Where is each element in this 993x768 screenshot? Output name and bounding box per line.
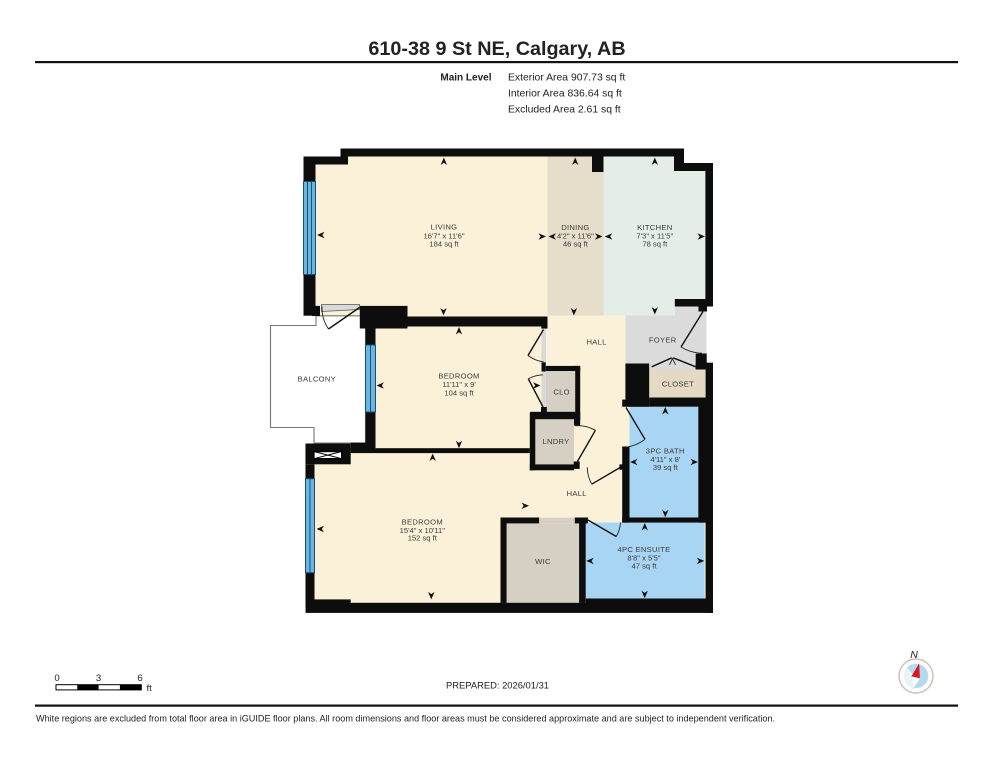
svg-text:152 sq ft: 152 sq ft — [408, 534, 438, 543]
svg-text:0: 0 — [54, 673, 59, 684]
svg-text:FOYER: FOYER — [649, 336, 677, 345]
svg-text:610-38 9 St NE, Calgary, AB: 610-38 9 St NE, Calgary, AB — [368, 38, 625, 60]
svg-text:CLOSET: CLOSET — [662, 380, 694, 389]
svg-text:Exterior Area 907.73 sq ft: Exterior Area 907.73 sq ft — [508, 73, 625, 84]
svg-text:HALL: HALL — [567, 489, 587, 498]
svg-text:Excluded Area 2.61 sq ft: Excluded Area 2.61 sq ft — [508, 105, 621, 116]
svg-text:LNDRY: LNDRY — [542, 437, 569, 446]
svg-text:3: 3 — [96, 673, 101, 684]
svg-text:HALL: HALL — [586, 337, 606, 346]
svg-text:White regions are excluded fro: White regions are excluded from total fl… — [36, 714, 775, 724]
svg-text:46 sq ft: 46 sq ft — [563, 240, 589, 249]
svg-text:Interior Area 836.64 sq ft: Interior Area 836.64 sq ft — [508, 89, 622, 100]
svg-text:WIC: WIC — [535, 557, 551, 566]
svg-text:PREPARED: 2026/01/31: PREPARED: 2026/01/31 — [446, 680, 549, 691]
svg-text:39 sq ft: 39 sq ft — [653, 463, 679, 472]
svg-text:184 sq ft: 184 sq ft — [429, 240, 459, 249]
svg-text:Main Level: Main Level — [440, 73, 491, 84]
svg-text:6: 6 — [137, 673, 142, 684]
svg-text:47 sq ft: 47 sq ft — [632, 562, 658, 571]
svg-text:LIVING: LIVING — [431, 223, 458, 232]
svg-text:CLO: CLO — [553, 388, 570, 397]
svg-text:78 sq ft: 78 sq ft — [642, 240, 668, 249]
svg-text:ft: ft — [147, 683, 153, 694]
svg-text:N: N — [910, 649, 918, 661]
svg-text:BALCONY: BALCONY — [298, 374, 336, 383]
svg-text:104 sq ft: 104 sq ft — [444, 389, 474, 398]
